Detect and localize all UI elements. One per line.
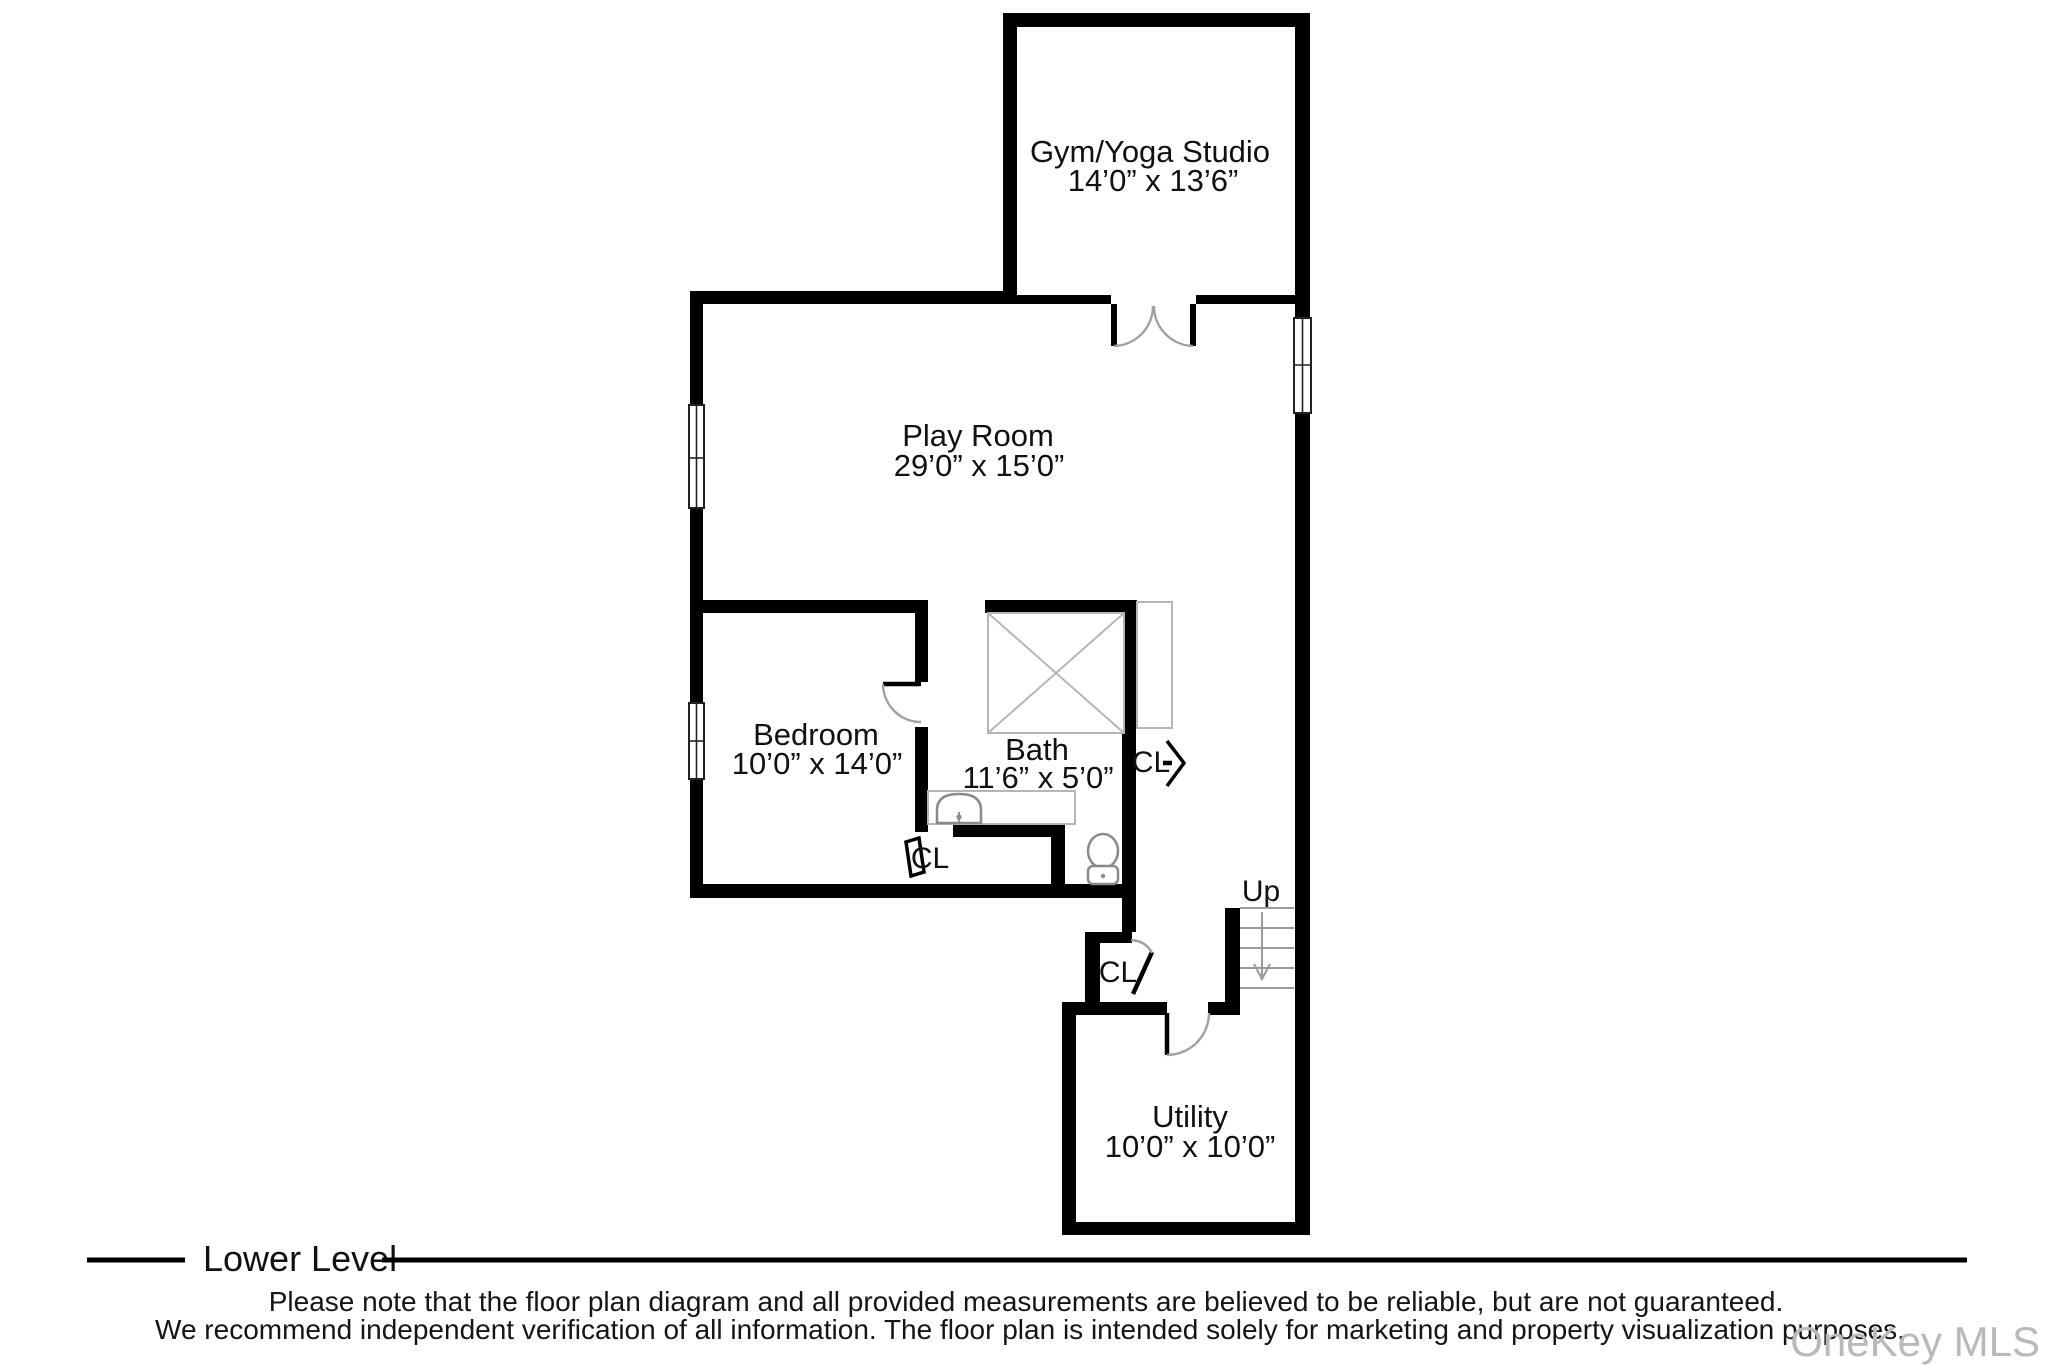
wall-stairs-left xyxy=(1225,908,1240,1015)
wall-playroom-top xyxy=(690,291,1016,304)
wall-bedroom-hall-upper xyxy=(915,600,928,682)
wall-gym-left xyxy=(1003,13,1017,304)
wall-right-lower xyxy=(1295,413,1310,1235)
wall-vanity-bottom xyxy=(953,823,1065,837)
wall-utility-top-left xyxy=(1062,1002,1167,1015)
linen-closet-outline xyxy=(1137,602,1172,728)
disclaimer-line-1: Please note that the floor plan diagram … xyxy=(269,1286,1784,1317)
door-arc-icon-gym-left xyxy=(1114,306,1153,346)
door-arc-icon-gym-right xyxy=(1154,306,1193,346)
footer: Lower Level Please note that the floor p… xyxy=(87,1238,2040,1365)
gym-door-left-leaf xyxy=(1111,304,1117,346)
vanity-counter xyxy=(928,791,1075,824)
wall-right-upper xyxy=(1295,13,1310,318)
wall-bedroom-top xyxy=(690,600,928,613)
wall-bedroom-bottom xyxy=(690,884,1136,898)
level-title: Lower Level xyxy=(203,1238,397,1279)
gym-door-right-leaf xyxy=(1190,304,1196,346)
wall-left-3 xyxy=(690,779,703,898)
wall-utility-bottom xyxy=(1062,1222,1310,1235)
floor-plan-page: Gym/Yoga Studio 14’0” x 13’6” Play Room … xyxy=(0,0,2048,1365)
window-icon-bedroom-left xyxy=(689,703,704,779)
wall-left-1 xyxy=(690,291,703,405)
wall-bedroom-hall-lower xyxy=(915,727,928,832)
room-dims-utility: 10’0” x 10’0” xyxy=(1105,1129,1276,1164)
sink-icon xyxy=(937,794,981,823)
stairs-icon xyxy=(1240,908,1294,988)
door-arc-icon-bedroom xyxy=(883,684,921,722)
window-icon-right-wall xyxy=(1294,318,1311,413)
wall-gym-bottom-left xyxy=(1016,295,1111,304)
window-icon-playroom-left xyxy=(689,405,704,508)
disclaimer-line-2: We recommend independent verification of… xyxy=(155,1314,1905,1345)
shower-icon xyxy=(988,613,1124,733)
closet-label-bedroom: CL xyxy=(911,842,949,875)
closet-label-stairs: CL xyxy=(1099,956,1137,989)
room-dims-play: 29’0” x 15’0” xyxy=(894,448,1065,483)
floor-plan-drawing: Gym/Yoga Studio 14’0” x 13’6” Play Room … xyxy=(0,0,2048,1365)
wall-gym-bottom-right xyxy=(1196,295,1295,304)
room-dims-bedroom: 10’0” x 14’0” xyxy=(732,746,903,781)
room-dims-gym: 14’0” x 13’6” xyxy=(1068,163,1239,198)
wall-stair-closet-left xyxy=(1085,932,1100,1013)
room-dims-bath: 11’6” x 5’0” xyxy=(962,760,1113,795)
wall-utility-left xyxy=(1062,1002,1076,1235)
stairs-up-label: Up xyxy=(1242,875,1280,908)
toilet-icon xyxy=(1088,834,1118,884)
watermark-logo: OneKey MLS xyxy=(1790,1318,2040,1365)
wall-gym-top xyxy=(1003,13,1310,27)
wall-bath-top xyxy=(985,600,1137,613)
door-arc-icon-utility xyxy=(1167,1013,1209,1055)
closet-label-bath: CL xyxy=(1132,746,1170,779)
door-arc-icon-stair-closet xyxy=(1131,940,1152,953)
